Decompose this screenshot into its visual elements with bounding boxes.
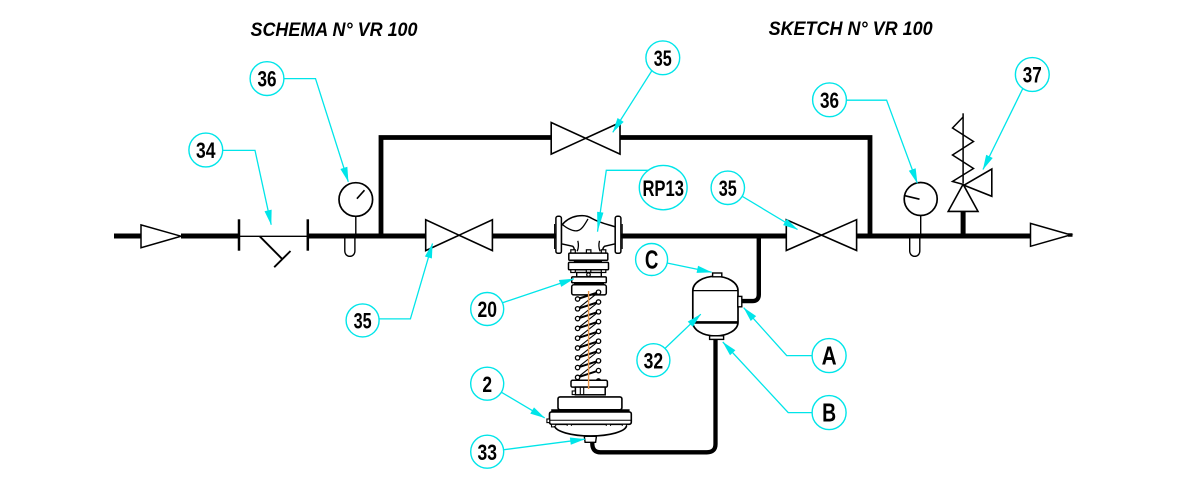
svg-text:32: 32 (644, 348, 664, 373)
svg-text:C: C (645, 245, 659, 275)
svg-text:35: 35 (719, 176, 737, 201)
svg-text:20: 20 (477, 297, 497, 322)
svg-text:2: 2 (482, 372, 492, 397)
svg-text:A: A (822, 341, 837, 371)
svg-text:35: 35 (354, 309, 372, 334)
svg-text:RP13: RP13 (642, 176, 684, 201)
svg-text:35: 35 (654, 46, 672, 71)
svg-text:36: 36 (820, 88, 839, 113)
svg-text:34: 34 (196, 138, 216, 163)
svg-text:SKETCH N° VR 100: SKETCH N° VR 100 (769, 19, 933, 40)
svg-text:B: B (822, 398, 836, 428)
svg-text:33: 33 (477, 440, 497, 465)
svg-text:37: 37 (1023, 63, 1042, 88)
svg-text:36: 36 (258, 67, 277, 92)
svg-text:SCHEMA N° VR 100: SCHEMA N° VR 100 (251, 20, 418, 41)
